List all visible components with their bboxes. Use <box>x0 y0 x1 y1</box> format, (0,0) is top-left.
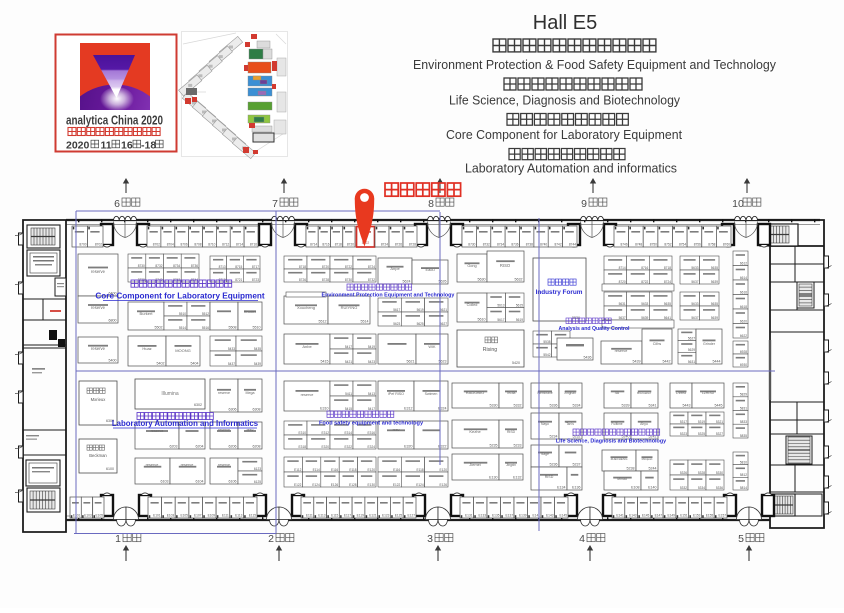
svg-text:8706: 8706 <box>181 243 188 247</box>
svg-text:5330: 5330 <box>490 404 498 408</box>
svg-text:5613: 5613 <box>497 303 504 307</box>
svg-text:reserve: reserve <box>301 393 314 397</box>
svg-text:RUIYING: RUIYING <box>341 305 358 310</box>
svg-text:8740: 8740 <box>540 243 547 247</box>
svg-text:reserve: reserve <box>91 269 106 274</box>
svg-text:8748: 8748 <box>635 243 642 247</box>
svg-text:5334: 5334 <box>573 404 581 408</box>
svg-text:5236: 5236 <box>550 463 558 467</box>
svg-text:8712: 8712 <box>222 243 229 247</box>
svg-text:5630: 5630 <box>478 278 486 282</box>
svg-text:E125: E125 <box>395 514 403 518</box>
svg-text:5421: 5421 <box>345 360 352 364</box>
svg-text:E145: E145 <box>642 514 650 518</box>
svg-text:6612: 6612 <box>740 261 747 265</box>
svg-text:Xinghan: Xinghan <box>564 391 576 395</box>
svg-text:8744: 8744 <box>569 243 576 247</box>
svg-text:E124: E124 <box>312 483 320 487</box>
svg-text:Sage: Sage <box>541 452 549 456</box>
svg-text:E111: E111 <box>306 514 313 518</box>
svg-text:8714: 8714 <box>236 243 243 247</box>
svg-text:8700: 8700 <box>79 243 86 247</box>
svg-text:8752: 8752 <box>664 243 671 247</box>
svg-text:E157: E157 <box>719 514 727 518</box>
svg-text:E322: E322 <box>345 445 353 449</box>
svg-text:Environment Protection & Food: Environment Protection & Food Safety Equ… <box>413 57 777 72</box>
svg-text:E123: E123 <box>382 514 390 518</box>
svg-text:Teclfa: Teclfa <box>507 391 516 395</box>
svg-text:5419: 5419 <box>368 345 375 349</box>
svg-text:5641: 5641 <box>664 316 671 320</box>
svg-text:5516: 5516 <box>202 326 209 330</box>
svg-text:iPef RISO: iPef RISO <box>388 392 404 396</box>
svg-text:reserve: reserve <box>615 349 628 353</box>
svg-text:5417: 5417 <box>345 345 352 349</box>
svg-text:5512: 5512 <box>202 312 209 316</box>
svg-text:5404: 5404 <box>191 362 199 366</box>
svg-text:5637: 5637 <box>691 316 698 320</box>
svg-text:2020: 2020 <box>66 140 90 152</box>
svg-text:5629: 5629 <box>688 348 695 352</box>
svg-text:reserve: reserve <box>91 346 106 351</box>
svg-text:5332: 5332 <box>514 404 522 408</box>
svg-text:5442: 5442 <box>663 360 671 364</box>
svg-text:5327: 5327 <box>716 432 723 436</box>
svg-text:E116: E116 <box>331 468 338 472</box>
svg-text:6: 6 <box>114 198 120 210</box>
svg-text:5833: 5833 <box>740 420 747 424</box>
svg-text:E128: E128 <box>349 483 357 487</box>
svg-text:8736: 8736 <box>511 243 518 247</box>
svg-text:reserve: reserve <box>91 305 106 310</box>
svg-text:8728: 8728 <box>322 278 329 282</box>
svg-text:5619: 5619 <box>417 308 424 312</box>
svg-text:Ahyu: Ahyu <box>640 422 648 426</box>
svg-text:6106: 6106 <box>229 480 237 484</box>
svg-text:E312: E312 <box>322 431 330 435</box>
svg-text:5437: 5437 <box>228 362 235 366</box>
svg-text:6306: 6306 <box>229 408 237 412</box>
svg-text:8728: 8728 <box>409 243 416 247</box>
svg-text:E135: E135 <box>492 514 500 518</box>
svg-text:5435: 5435 <box>254 347 261 351</box>
svg-text:Fulltime: Fulltime <box>611 422 622 426</box>
svg-text:8715: 8715 <box>235 265 242 269</box>
svg-text:8713: 8713 <box>219 265 226 269</box>
svg-text:5812: 5812 <box>740 473 747 477</box>
svg-text:reserve: reserve <box>181 463 194 467</box>
svg-text:E320: E320 <box>404 445 412 449</box>
svg-text:6928: 6928 <box>740 350 747 354</box>
svg-text:Environment Protection Equipme: Environment Protection Equipment and Tec… <box>322 293 455 299</box>
svg-text:E105: E105 <box>180 514 188 518</box>
svg-text:8730: 8730 <box>345 278 352 282</box>
svg-text:5330: 5330 <box>716 471 723 475</box>
svg-text:5633: 5633 <box>691 302 698 306</box>
svg-text:Laboratory Automation and Info: Laboratory Automation and Informatics <box>112 419 259 428</box>
svg-text:Membrane: Membrane <box>537 391 552 395</box>
svg-text:7: 7 <box>272 198 278 210</box>
svg-text:E126: E126 <box>331 483 339 487</box>
svg-text:E149: E149 <box>667 514 675 518</box>
svg-text:Core Component for Laboratory: Core Component for Laboratory Equipment <box>446 127 682 142</box>
svg-text:5633: 5633 <box>691 266 698 270</box>
svg-text:8724: 8724 <box>368 265 375 269</box>
svg-text:Beckman: Beckman <box>89 453 107 458</box>
svg-text:E316: E316 <box>368 431 376 435</box>
svg-text:5639: 5639 <box>641 316 648 320</box>
svg-text:8732: 8732 <box>483 243 490 247</box>
svg-text:reserve: reserve <box>146 463 159 467</box>
svg-text:5237: 5237 <box>573 463 581 467</box>
svg-text:E151: E151 <box>680 514 688 518</box>
svg-text:Coiled: Coiled <box>467 303 478 307</box>
svg-text:6100: 6100 <box>106 467 114 471</box>
svg-text:Analysis and Quality Control: Analysis and Quality Control <box>559 326 630 332</box>
svg-text:5627: 5627 <box>440 322 447 326</box>
svg-text:9: 9 <box>581 198 587 210</box>
svg-text:E109: E109 <box>208 514 216 518</box>
svg-text:reserve: reserve <box>218 391 230 395</box>
svg-text:5627: 5627 <box>688 337 695 341</box>
svg-text:E108: E108 <box>631 486 639 490</box>
svg-text:Bio-Gener: Bio-Gener <box>637 391 651 395</box>
svg-text:E114: E114 <box>313 468 320 472</box>
svg-text:5444: 5444 <box>713 360 721 364</box>
svg-text:6308: 6308 <box>253 408 261 412</box>
svg-text:5637: 5637 <box>691 280 698 284</box>
svg-text:8722: 8722 <box>345 265 352 269</box>
svg-text:6614: 6614 <box>740 276 747 280</box>
svg-text:5617: 5617 <box>393 308 400 312</box>
svg-text:5621: 5621 <box>407 360 415 364</box>
svg-text:5334: 5334 <box>698 486 705 490</box>
svg-text:8718: 8718 <box>335 243 342 247</box>
svg-text:6204: 6204 <box>196 445 204 449</box>
svg-text:E121: E121 <box>369 514 377 518</box>
svg-text:E153: E153 <box>693 514 701 518</box>
svg-text:8718: 8718 <box>664 266 671 270</box>
svg-text:6618: 6618 <box>740 305 747 309</box>
svg-text:5: 5 <box>738 533 744 545</box>
svg-text:5542: 5542 <box>543 353 550 357</box>
svg-text:16: 16 <box>121 140 133 152</box>
svg-text:Core Component for Laboratory: Core Component for Laboratory Equipment <box>95 292 264 301</box>
svg-text:analytica China 2020: analytica China 2020 <box>66 114 163 128</box>
svg-text:6206: 6206 <box>229 445 237 449</box>
svg-text:8723: 8723 <box>252 278 259 282</box>
svg-text:reserve: reserve <box>218 463 230 467</box>
svg-text:E111: E111 <box>222 514 229 518</box>
svg-text:8721: 8721 <box>235 278 242 282</box>
svg-text:5341: 5341 <box>649 404 657 408</box>
svg-text:-18: -18 <box>141 140 156 152</box>
svg-text:8: 8 <box>428 198 434 210</box>
svg-text:5610: 5610 <box>478 318 486 322</box>
svg-text:5339: 5339 <box>622 404 630 408</box>
svg-text:E107: E107 <box>194 514 202 518</box>
svg-text:5814: 5814 <box>740 486 747 490</box>
svg-text:6616: 6616 <box>740 290 747 294</box>
svg-text:8742: 8742 <box>555 243 562 247</box>
svg-text:5633: 5633 <box>641 302 648 306</box>
svg-text:8750: 8750 <box>650 243 657 247</box>
svg-text:5411: 5411 <box>345 392 352 396</box>
svg-text:8710: 8710 <box>208 243 215 247</box>
svg-text:5621: 5621 <box>440 308 447 312</box>
svg-text:5436: 5436 <box>584 356 592 360</box>
svg-text:6930: 6930 <box>740 363 747 367</box>
svg-text:MOONG: MOONG <box>175 348 191 353</box>
svg-text:1: 1 <box>115 533 121 545</box>
svg-text:E101: E101 <box>153 514 161 518</box>
svg-text:8714: 8714 <box>310 243 317 247</box>
svg-text:Jiemei: Jiemei <box>469 462 481 467</box>
svg-text:5619: 5619 <box>516 318 523 322</box>
svg-text:5632: 5632 <box>515 278 523 282</box>
svg-text:E130: E130 <box>368 483 376 487</box>
svg-text:E141: E141 <box>616 514 624 518</box>
svg-text:5336: 5336 <box>550 404 558 408</box>
svg-text:5831: 5831 <box>740 406 747 410</box>
svg-text:E324: E324 <box>438 407 446 411</box>
svg-text:6125: 6125 <box>254 480 261 484</box>
svg-text:E131: E131 <box>465 514 473 518</box>
svg-text:E318: E318 <box>299 445 307 449</box>
svg-text:Minquan: Minquan <box>642 457 653 461</box>
svg-text:8716: 8716 <box>641 266 648 270</box>
svg-text:8754: 8754 <box>679 243 686 247</box>
svg-text:2: 2 <box>268 533 274 545</box>
svg-text:Mirrad: Mirrad <box>617 477 627 481</box>
svg-text:E140: E140 <box>648 486 656 490</box>
svg-text:Rhodex: Rhodex <box>244 310 257 314</box>
svg-text:8724: 8724 <box>664 280 671 284</box>
svg-text:Industry Forum: Industry Forum <box>536 289 583 296</box>
svg-text:5617: 5617 <box>497 318 504 322</box>
svg-text:5317: 5317 <box>680 420 687 424</box>
svg-text:5514: 5514 <box>179 326 186 330</box>
svg-text:Grinder: Grinder <box>703 342 716 346</box>
svg-text:E143: E143 <box>546 514 554 518</box>
svg-text:5623: 5623 <box>393 322 400 326</box>
svg-text:E120: E120 <box>440 468 448 472</box>
svg-text:8732: 8732 <box>368 278 375 282</box>
svg-text:L/treea: L/treea <box>676 391 686 395</box>
svg-text:5233: 5233 <box>514 444 522 448</box>
svg-text:reserve: reserve <box>218 428 230 432</box>
svg-text:5510: 5510 <box>179 312 186 316</box>
svg-text:E118: E118 <box>349 468 356 472</box>
svg-text:5323: 5323 <box>680 432 687 436</box>
svg-text:5639: 5639 <box>711 316 718 320</box>
svg-text:E310: E310 <box>299 431 307 435</box>
svg-text:5615: 5615 <box>516 303 523 307</box>
svg-text:8720: 8720 <box>322 265 329 269</box>
svg-text:8734: 8734 <box>497 243 504 247</box>
svg-text:8708: 8708 <box>194 243 201 247</box>
svg-text:E136: E136 <box>572 486 580 490</box>
svg-text:E322: E322 <box>438 445 446 449</box>
svg-text:8716: 8716 <box>322 243 329 247</box>
svg-text:5443: 5443 <box>683 404 691 408</box>
svg-text:Nayo: Nayo <box>541 422 549 426</box>
svg-text:Rising: Rising <box>483 347 498 353</box>
svg-text:5635: 5635 <box>711 266 718 270</box>
svg-text:5433: 5433 <box>228 347 235 351</box>
svg-text:Jingxin: Jingxin <box>506 463 516 467</box>
svg-text:Gong: Gong <box>467 264 476 268</box>
svg-text:RISD: RISD <box>507 430 516 434</box>
svg-text:5835: 5835 <box>740 434 747 438</box>
svg-text:5829: 5829 <box>740 393 747 397</box>
svg-text:E116: E116 <box>393 468 400 472</box>
svg-text:Swimen: Swimen <box>425 392 438 396</box>
svg-text:Burkert: Burkert <box>140 311 154 316</box>
svg-text:resv: resv <box>393 428 400 432</box>
svg-text:8758: 8758 <box>708 243 715 247</box>
svg-text:5244: 5244 <box>649 467 657 471</box>
svg-text:WIK: WIK <box>428 345 436 349</box>
svg-text:E324: E324 <box>368 445 376 449</box>
svg-text:5400: 5400 <box>109 359 117 363</box>
svg-text:E137: E137 <box>506 514 514 518</box>
svg-text:5319: 5319 <box>698 420 705 424</box>
svg-text:6203: 6203 <box>170 445 178 449</box>
svg-text:8722: 8722 <box>641 280 648 284</box>
svg-text:5415: 5415 <box>345 407 352 411</box>
svg-text:Illumina: Illumina <box>161 391 178 397</box>
svg-text:5445: 5445 <box>715 404 723 408</box>
svg-text:5635: 5635 <box>664 302 671 306</box>
svg-text:8746: 8746 <box>621 243 628 247</box>
svg-text:E103: E103 <box>84 514 92 518</box>
svg-text:E113: E113 <box>235 514 242 518</box>
svg-text:11: 11 <box>101 140 112 152</box>
svg-text:E118: E118 <box>416 468 423 472</box>
svg-text:5413: 5413 <box>368 392 375 396</box>
svg-text:5235: 5235 <box>490 444 498 448</box>
svg-text:E113: E113 <box>318 514 325 518</box>
svg-text:10: 10 <box>732 198 744 210</box>
svg-text:E126: E126 <box>440 483 448 487</box>
svg-text:6302: 6302 <box>194 403 202 407</box>
svg-text:ZHECHENG: ZHECHENG <box>611 457 629 461</box>
svg-text:E320: E320 <box>322 445 330 449</box>
svg-text:5635: 5635 <box>711 302 718 306</box>
svg-text:8720: 8720 <box>347 243 354 247</box>
svg-text:Laboratory Automation and info: Laboratory Automation and informatics <box>465 161 677 176</box>
svg-text:Tan's: Tan's <box>566 422 574 426</box>
svg-text:LZRISD: LZRISD <box>702 391 715 395</box>
svg-text:E145: E145 <box>560 514 568 518</box>
svg-text:8724: 8724 <box>381 243 388 247</box>
svg-text:5637: 5637 <box>619 316 626 320</box>
svg-text:8732: 8732 <box>155 264 162 268</box>
svg-text:E133: E133 <box>479 514 487 518</box>
svg-text:5639: 5639 <box>711 280 718 284</box>
svg-text:5420: 5420 <box>512 361 520 365</box>
svg-text:5238: 5238 <box>627 467 635 471</box>
svg-text:E120: E120 <box>368 468 376 472</box>
svg-text:Eacu: Eacu <box>425 267 434 272</box>
svg-text:E310: E310 <box>320 407 328 411</box>
svg-text:Cilhs: Cilhs <box>653 342 662 346</box>
svg-text:Anbe: Anbe <box>302 344 312 349</box>
svg-text:E127: E127 <box>408 514 416 518</box>
svg-text:8738: 8738 <box>526 243 533 247</box>
svg-text:Huaz: Huaz <box>142 346 151 351</box>
svg-text:E314: E314 <box>345 431 353 435</box>
svg-text:5624: 5624 <box>403 280 411 284</box>
svg-text:Food safety equipment and tech: Food safety equipment and technology <box>319 421 424 427</box>
svg-text:E122: E122 <box>294 483 302 487</box>
svg-text:Hall E5: Hall E5 <box>533 12 597 34</box>
svg-text:8734: 8734 <box>173 264 180 268</box>
svg-text:5417: 5417 <box>368 407 375 411</box>
svg-text:5326: 5326 <box>680 471 687 475</box>
svg-text:5512: 5512 <box>319 320 327 324</box>
svg-text:E139: E139 <box>519 514 527 518</box>
svg-text:6620: 6620 <box>740 319 747 323</box>
svg-text:6123: 6123 <box>254 467 261 471</box>
svg-text:6208: 6208 <box>253 445 261 449</box>
svg-text:resv: resv <box>247 428 254 432</box>
svg-text:RISO: RISO <box>500 263 511 268</box>
svg-text:E115: E115 <box>331 514 338 518</box>
svg-text:8717: 8717 <box>252 265 259 269</box>
svg-text:Kezhe: Kezhe <box>469 429 481 434</box>
svg-text:5510: 5510 <box>253 326 261 330</box>
svg-text:E155: E155 <box>706 514 714 518</box>
svg-text:8714: 8714 <box>619 266 626 270</box>
svg-text:E124: E124 <box>416 483 424 487</box>
svg-text:6104: 6104 <box>196 480 204 484</box>
svg-text:5415: 5415 <box>321 360 329 364</box>
svg-text:Anpe: Anpe <box>390 266 400 271</box>
svg-text:8736: 8736 <box>191 264 198 268</box>
svg-text:6622: 6622 <box>740 334 747 338</box>
svg-text:8730: 8730 <box>138 264 145 268</box>
svg-text:8716: 8716 <box>250 243 257 247</box>
svg-text:5336: 5336 <box>716 486 723 490</box>
svg-text:5325: 5325 <box>698 432 705 436</box>
svg-text:5402: 5402 <box>157 362 165 366</box>
svg-text:8704: 8704 <box>167 243 174 247</box>
svg-text:reserve: reserve <box>151 429 164 433</box>
svg-text:5439: 5439 <box>254 362 261 366</box>
svg-text:E143: E143 <box>629 514 637 518</box>
svg-text:Xoucheng: Xoucheng <box>297 305 315 310</box>
svg-text:E105: E105 <box>96 514 104 518</box>
svg-text:6800: 6800 <box>109 319 117 323</box>
svg-text:5538: 5538 <box>543 340 550 344</box>
svg-text:RADOBIO: RADOBIO <box>466 390 484 395</box>
svg-text:8702: 8702 <box>95 243 102 247</box>
svg-text:5332: 5332 <box>680 486 687 490</box>
svg-text:4: 4 <box>579 533 585 545</box>
svg-text:5631: 5631 <box>619 302 626 306</box>
svg-text:8730: 8730 <box>468 243 475 247</box>
svg-text:E132: E132 <box>513 476 521 480</box>
svg-text:3: 3 <box>427 533 433 545</box>
svg-text:5810: 5810 <box>740 461 747 465</box>
svg-text:E134: E134 <box>557 486 565 490</box>
svg-text:5508: 5508 <box>229 326 237 330</box>
svg-text:5502: 5502 <box>155 326 163 330</box>
svg-text:5631: 5631 <box>688 360 695 364</box>
svg-text:8756: 8756 <box>694 243 701 247</box>
